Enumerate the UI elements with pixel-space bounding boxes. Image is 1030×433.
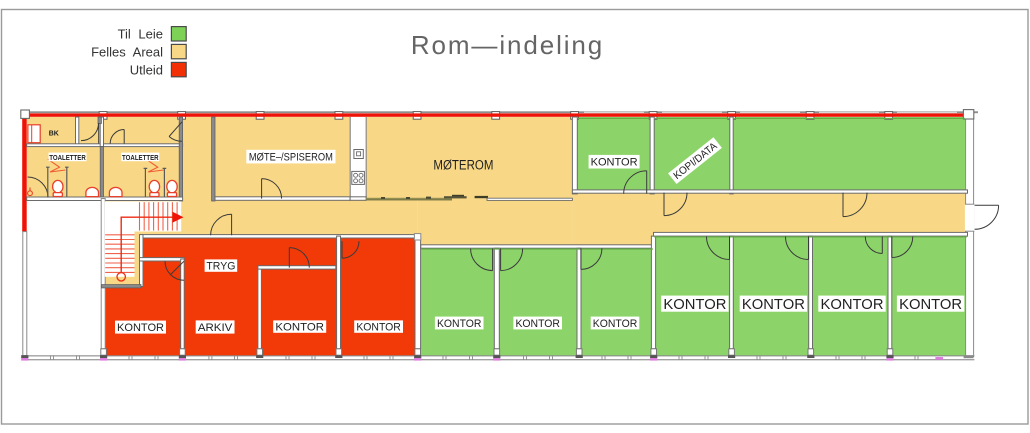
svg-text:TRYG: TRYG xyxy=(206,260,235,272)
svg-text:Rom—indeling: Rom—indeling xyxy=(411,30,604,60)
svg-text:BK: BK xyxy=(49,131,59,138)
svg-text:Utleid: Utleid xyxy=(130,62,163,77)
svg-text:KONTOR: KONTOR xyxy=(821,297,884,313)
svg-text:KONTOR: KONTOR xyxy=(742,297,805,313)
svg-text:KONTOR: KONTOR xyxy=(593,318,638,330)
svg-text:KONTOR: KONTOR xyxy=(663,297,726,313)
svg-text:KONTOR: KONTOR xyxy=(275,322,324,334)
svg-text:TOALETTER: TOALETTER xyxy=(49,153,86,162)
svg-text:KONTOR: KONTOR xyxy=(591,157,638,169)
svg-text:Til Leie: Til Leie xyxy=(118,27,163,42)
svg-text:ARKIV: ARKIV xyxy=(198,322,233,334)
svg-text:KONTOR: KONTOR xyxy=(437,318,482,330)
svg-text:TOALETTER: TOALETTER xyxy=(122,153,159,162)
svg-text:KONTOR: KONTOR xyxy=(117,322,164,334)
svg-text:KONTOR: KONTOR xyxy=(515,318,560,330)
svg-text:MØTE–/SPISEROM: MØTE–/SPISEROM xyxy=(249,152,333,164)
svg-text:KONTOR: KONTOR xyxy=(356,322,401,334)
svg-text:Felles Areal: Felles Areal xyxy=(91,44,163,59)
svg-text:KONTOR: KONTOR xyxy=(899,297,962,313)
svg-text:MØTEROM: MØTEROM xyxy=(433,157,493,172)
